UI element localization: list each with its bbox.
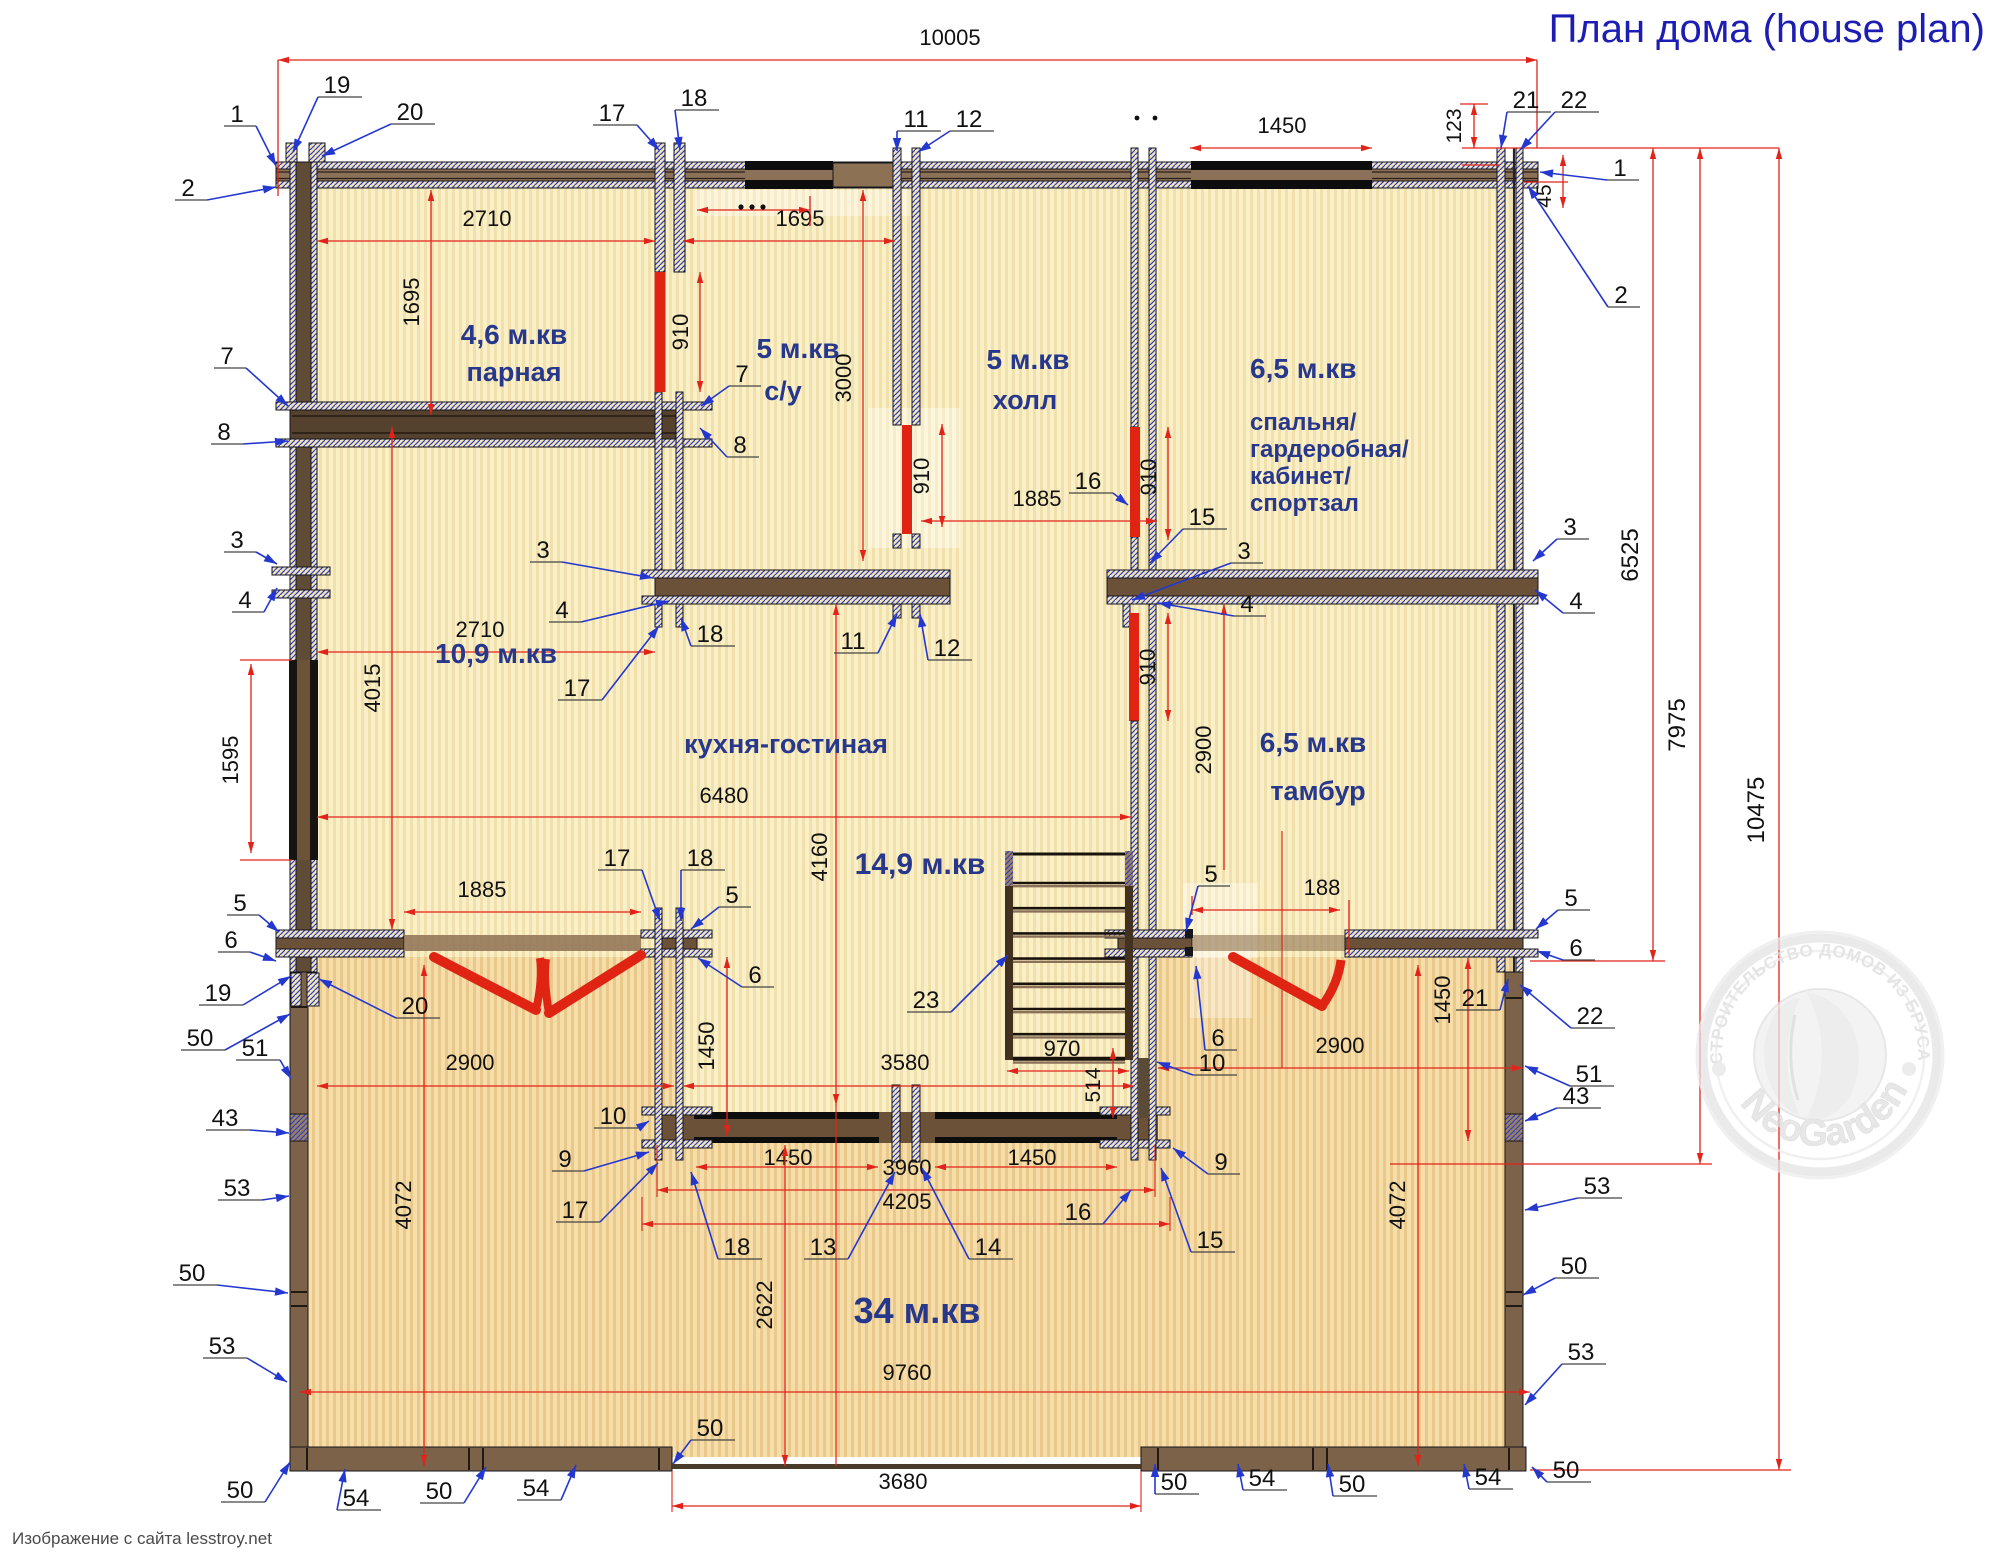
svg-text:5: 5 — [1564, 885, 1577, 912]
svg-text:54: 54 — [523, 1475, 550, 1502]
svg-text:50: 50 — [426, 1478, 453, 1505]
svg-text:кухня-гостиная: кухня-гостиная — [684, 729, 888, 759]
svg-text:50: 50 — [187, 1025, 214, 1052]
svg-text:11: 11 — [904, 106, 929, 133]
svg-text:кабинет/: кабинет/ — [1250, 463, 1351, 490]
svg-text:4: 4 — [555, 597, 568, 624]
svg-text:50: 50 — [1553, 1457, 1580, 1484]
svg-text:4015: 4015 — [360, 664, 385, 713]
svg-text:1450: 1450 — [1258, 113, 1307, 138]
svg-text:4205: 4205 — [883, 1189, 932, 1214]
svg-text:43: 43 — [212, 1105, 239, 1132]
svg-text:9760: 9760 — [883, 1360, 932, 1385]
svg-text:3: 3 — [230, 527, 243, 554]
svg-text:парная: парная — [467, 357, 562, 387]
svg-text:16: 16 — [1065, 1199, 1092, 1226]
svg-text:1885: 1885 — [1013, 486, 1062, 511]
svg-text:51: 51 — [242, 1035, 269, 1062]
svg-text:910: 910 — [909, 458, 934, 495]
svg-text:910: 910 — [1136, 459, 1161, 496]
svg-text:9: 9 — [1214, 1149, 1227, 1176]
svg-text:4: 4 — [238, 587, 251, 614]
svg-text:10: 10 — [1199, 1050, 1226, 1077]
svg-text:23: 23 — [913, 987, 940, 1014]
svg-text:7975: 7975 — [1664, 698, 1691, 751]
svg-text:10475: 10475 — [1743, 777, 1770, 844]
svg-text:3: 3 — [536, 537, 549, 564]
svg-text:18: 18 — [681, 85, 708, 112]
svg-text:с/у: с/у — [764, 376, 802, 406]
svg-text:6,5 м.кв: 6,5 м.кв — [1250, 353, 1356, 384]
svg-text:6525: 6525 — [1617, 528, 1644, 581]
svg-text:18: 18 — [697, 621, 724, 648]
svg-text:2: 2 — [181, 175, 194, 202]
svg-text:7: 7 — [220, 343, 233, 370]
svg-text:13: 13 — [810, 1234, 837, 1261]
svg-text:2710: 2710 — [463, 206, 512, 231]
svg-text:188: 188 — [1304, 875, 1341, 900]
svg-text:спортзал: спортзал — [1250, 490, 1359, 517]
svg-text:9: 9 — [558, 1146, 571, 1173]
svg-text:2: 2 — [1614, 282, 1627, 309]
svg-text:18: 18 — [687, 845, 714, 872]
svg-text:4160: 4160 — [807, 833, 832, 882]
svg-text:8: 8 — [217, 419, 230, 446]
svg-text:4072: 4072 — [391, 1181, 416, 1230]
svg-text:54: 54 — [343, 1485, 370, 1512]
svg-text:1695: 1695 — [399, 278, 424, 327]
svg-text:6: 6 — [224, 927, 237, 954]
svg-text:тамбур: тамбур — [1270, 776, 1365, 806]
svg-text:21: 21 — [1462, 985, 1489, 1012]
svg-text:7: 7 — [735, 361, 748, 388]
svg-text:6480: 6480 — [700, 783, 749, 808]
svg-text:15: 15 — [1189, 504, 1216, 531]
svg-text:20: 20 — [402, 993, 429, 1020]
svg-text:50: 50 — [1339, 1471, 1366, 1498]
svg-text:11: 11 — [841, 628, 866, 655]
svg-text:17: 17 — [599, 100, 626, 127]
svg-text:910: 910 — [668, 314, 693, 351]
svg-text:8: 8 — [733, 432, 746, 459]
svg-text:5: 5 — [233, 890, 246, 917]
svg-text:6: 6 — [748, 962, 761, 989]
svg-text:50: 50 — [227, 1477, 254, 1504]
svg-text:1595: 1595 — [218, 736, 243, 785]
svg-text:50: 50 — [179, 1260, 206, 1287]
svg-text:1450: 1450 — [694, 1022, 719, 1071]
svg-text:5: 5 — [725, 882, 738, 909]
svg-text:1450: 1450 — [764, 1145, 813, 1170]
svg-text:3580: 3580 — [881, 1050, 930, 1075]
svg-text:15: 15 — [1197, 1227, 1224, 1254]
svg-text:3: 3 — [1237, 538, 1250, 565]
svg-text:10005: 10005 — [919, 25, 980, 50]
svg-text:12: 12 — [956, 106, 983, 133]
svg-text:970: 970 — [1044, 1036, 1081, 1061]
svg-text:холл: холл — [993, 385, 1057, 415]
svg-text:17: 17 — [604, 845, 631, 872]
svg-text:6: 6 — [1211, 1025, 1224, 1052]
svg-text:2622: 2622 — [752, 1281, 777, 1330]
svg-text:5 м.кв: 5 м.кв — [986, 344, 1069, 375]
svg-text:54: 54 — [1475, 1464, 1502, 1491]
svg-text:3: 3 — [1563, 514, 1576, 541]
svg-text:гардеробная/: гардеробная/ — [1250, 436, 1409, 463]
svg-text:План дома (house plan): План дома (house plan) — [1549, 7, 1985, 51]
svg-text:53: 53 — [224, 1175, 251, 1202]
svg-text:22: 22 — [1561, 87, 1588, 114]
svg-text:43: 43 — [1563, 1083, 1590, 1110]
svg-text:1450: 1450 — [1008, 1145, 1057, 1170]
svg-text:4072: 4072 — [1385, 1181, 1410, 1230]
svg-text:4: 4 — [1240, 591, 1253, 618]
svg-text:123: 123 — [1443, 108, 1466, 143]
svg-text:10,9 м.кв: 10,9 м.кв — [435, 638, 557, 669]
svg-text:12: 12 — [934, 635, 961, 662]
svg-text:6: 6 — [1569, 935, 1582, 962]
svg-text:19: 19 — [205, 980, 232, 1007]
svg-text:514: 514 — [1082, 1067, 1105, 1102]
svg-text:2900: 2900 — [1191, 726, 1216, 775]
svg-text:5 м.кв: 5 м.кв — [756, 333, 839, 364]
svg-text:50: 50 — [1161, 1469, 1188, 1496]
svg-text:18: 18 — [724, 1234, 751, 1261]
svg-text:1450: 1450 — [1430, 976, 1455, 1025]
svg-text:6,5 м.кв: 6,5 м.кв — [1260, 727, 1366, 758]
svg-text:3680: 3680 — [879, 1469, 928, 1494]
svg-text:20: 20 — [397, 99, 424, 126]
svg-text:34 м.кв: 34 м.кв — [854, 1290, 981, 1331]
svg-text:17: 17 — [564, 675, 591, 702]
svg-text:53: 53 — [209, 1333, 236, 1360]
svg-text:21: 21 — [1513, 87, 1540, 114]
svg-text:50: 50 — [1561, 1253, 1588, 1280]
svg-text:4,6 м.кв: 4,6 м.кв — [461, 319, 567, 350]
svg-text:22: 22 — [1577, 1003, 1604, 1030]
svg-text:Изображение с сайта lesstroy.n: Изображение с сайта lesstroy.net — [12, 1529, 272, 1548]
svg-text:54: 54 — [1249, 1465, 1276, 1492]
svg-text:16: 16 — [1075, 468, 1102, 495]
svg-text:1: 1 — [1613, 155, 1626, 182]
svg-text:14,9 м.кв: 14,9 м.кв — [855, 848, 986, 881]
svg-text:53: 53 — [1584, 1173, 1611, 1200]
svg-text:1: 1 — [230, 101, 243, 128]
svg-text:19: 19 — [324, 72, 351, 99]
svg-text:2900: 2900 — [1316, 1033, 1365, 1058]
svg-text:5: 5 — [1204, 861, 1217, 888]
svg-text:14: 14 — [975, 1234, 1002, 1261]
svg-text:1885: 1885 — [458, 877, 507, 902]
svg-text:910: 910 — [1135, 649, 1160, 686]
svg-text:50: 50 — [697, 1415, 724, 1442]
svg-text:17: 17 — [562, 1197, 589, 1224]
svg-text:10: 10 — [600, 1103, 627, 1130]
svg-text:спальня/: спальня/ — [1250, 409, 1357, 436]
svg-text:53: 53 — [1568, 1339, 1595, 1366]
svg-text:2900: 2900 — [446, 1050, 495, 1075]
svg-text:4: 4 — [1569, 588, 1582, 615]
